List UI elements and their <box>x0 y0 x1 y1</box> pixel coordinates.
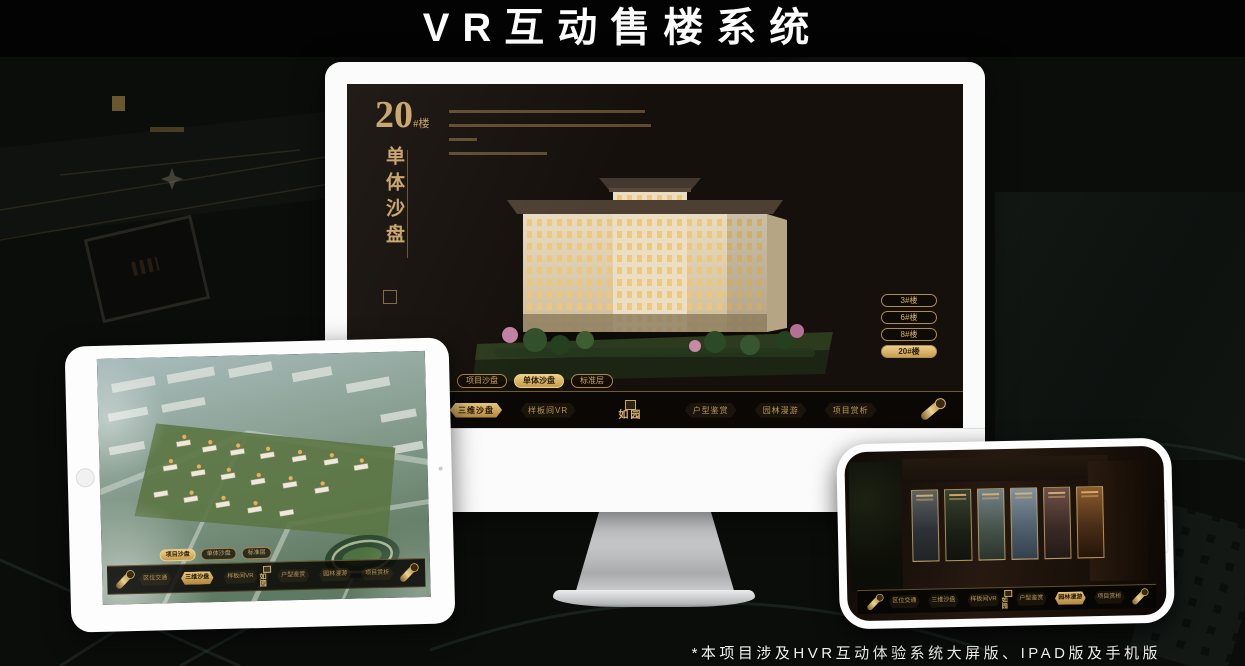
menu-group-right: 户型鉴赏园林漫游项目赏析 <box>682 403 880 418</box>
menu-group-right: 户型鉴赏园林漫游项目赏析 <box>1014 590 1126 605</box>
tablet-screen: 项目沙盘单体沙盘标准层 区位交通三维沙盘样板间VR 如园 户型鉴赏园林漫游项目赏… <box>97 351 431 605</box>
menu-item[interactable]: 样板间VR <box>517 403 579 418</box>
menu-item[interactable]: 园林漫游 <box>752 403 810 418</box>
section-title-rule <box>407 150 408 258</box>
brand-logo: 如园 <box>618 400 642 421</box>
monitor-stand-base <box>553 590 755 607</box>
interior-plant <box>848 461 903 592</box>
view-tab[interactable]: 标准层 <box>242 547 272 560</box>
monitor-stand <box>575 512 735 594</box>
brand-name: 如园 <box>618 411 642 421</box>
interior-canopy <box>902 455 1107 483</box>
scene-card[interactable] <box>911 489 940 562</box>
section-seal-icon <box>383 290 397 304</box>
scene-card[interactable] <box>1043 487 1072 560</box>
phone-device: 区位交通三维沙盘样板间VR 如园 户型鉴赏园林漫游项目赏析 <box>836 438 1175 630</box>
floor-button[interactable]: 8#楼 <box>881 328 937 341</box>
floor-button[interactable]: 20#楼 <box>881 345 937 358</box>
menu-item[interactable]: 项目赏析 <box>822 403 880 418</box>
menu-item[interactable]: 项目赏析 <box>1092 590 1126 604</box>
scene-card[interactable] <box>977 488 1006 561</box>
page: VR互动售楼系统 20#楼 单体沙盘 <box>0 0 1245 666</box>
view-tab[interactable]: 项目沙盘 <box>457 374 507 388</box>
phone-screen: 区位交通三维沙盘样板间VR 如园 户型鉴赏园林漫游项目赏析 <box>844 446 1166 622</box>
brand-name: 如园 <box>260 573 276 587</box>
scene-card-gallery <box>911 486 1104 562</box>
floor-button-group: 3#楼6#楼8#楼20#楼 <box>881 294 937 358</box>
menu-item[interactable]: 项目赏析 <box>359 567 395 581</box>
menu-item[interactable]: 三维沙盘 <box>179 571 215 585</box>
menu-item[interactable]: 园林漫游 <box>1053 591 1087 605</box>
building-number-value: 20 <box>375 94 413 136</box>
scroll-handle-icon[interactable] <box>399 563 418 582</box>
tablet-home-button <box>76 468 95 487</box>
section-title-vertical: 单体沙盘 <box>380 146 407 276</box>
menu-group-left: 区位交通三维沙盘样板间VR <box>137 570 260 586</box>
footer-note: *本项目涉及HVR互动体验系统大屏版、IPAD版及手机版 <box>692 642 1161 663</box>
tablet-device: 项目沙盘单体沙盘标准层 区位交通三维沙盘样板间VR 如园 户型鉴赏园林漫游项目赏… <box>65 337 456 632</box>
scroll-handle-icon[interactable] <box>919 399 944 422</box>
tablet-camera-icon <box>439 467 443 471</box>
menu-item[interactable]: 户型鉴赏 <box>682 403 740 418</box>
building-render[interactable] <box>465 132 845 382</box>
view-tab[interactable]: 单体沙盘 <box>201 548 237 561</box>
scroll-handle-icon[interactable] <box>115 570 134 589</box>
monitor-view-tabs: 项目沙盘单体沙盘标准层 <box>457 374 613 388</box>
menu-group-left: 区位交通三维沙盘样板间VR <box>887 593 1002 608</box>
scroll-handle-icon[interactable] <box>866 594 883 611</box>
scene-card[interactable] <box>944 489 973 562</box>
brand-seal-icon <box>1004 589 1012 596</box>
background-photo <box>995 192 1245 460</box>
menu-item[interactable]: 户型鉴赏 <box>1014 592 1048 606</box>
brand-name: 如园 <box>1002 597 1015 609</box>
brand-logo: 如园 <box>1002 589 1015 609</box>
brand-logo: 如园 <box>259 565 275 587</box>
floor-button[interactable]: 3#楼 <box>881 294 937 307</box>
brand-seal-icon <box>625 400 636 410</box>
building-unit-label: #楼 <box>413 118 430 130</box>
scene-card[interactable] <box>1010 487 1039 560</box>
phone-menu-bar: 区位交通三维沙盘样板间VR 如园 户型鉴赏园林漫游项目赏析 <box>857 584 1156 614</box>
scene-card[interactable] <box>1076 486 1105 559</box>
menu-item[interactable]: 区位交通 <box>887 595 921 609</box>
scroll-handle-icon[interactable] <box>1131 588 1148 605</box>
brand-seal-icon <box>263 565 271 572</box>
view-tab[interactable]: 项目沙盘 <box>160 549 196 562</box>
floor-button[interactable]: 6#楼 <box>881 311 937 324</box>
view-tab[interactable]: 单体沙盘 <box>514 374 564 388</box>
menu-item[interactable]: 三维沙盘 <box>447 403 505 418</box>
menu-group-right: 户型鉴赏园林漫游项目赏析 <box>275 567 395 583</box>
menu-item[interactable]: 户型鉴赏 <box>275 569 311 583</box>
menu-item[interactable]: 样板间VR <box>965 593 1002 607</box>
menu-item[interactable]: 区位交通 <box>137 572 173 586</box>
view-tab[interactable]: 标准层 <box>571 374 613 388</box>
page-title: VR互动售楼系统 <box>0 0 1245 57</box>
building-number: 20#楼 <box>375 96 430 134</box>
menu-item[interactable]: 园林漫游 <box>317 568 353 582</box>
menu-item[interactable]: 三维沙盘 <box>926 594 960 608</box>
menu-item[interactable]: 样板间VR <box>221 570 260 584</box>
